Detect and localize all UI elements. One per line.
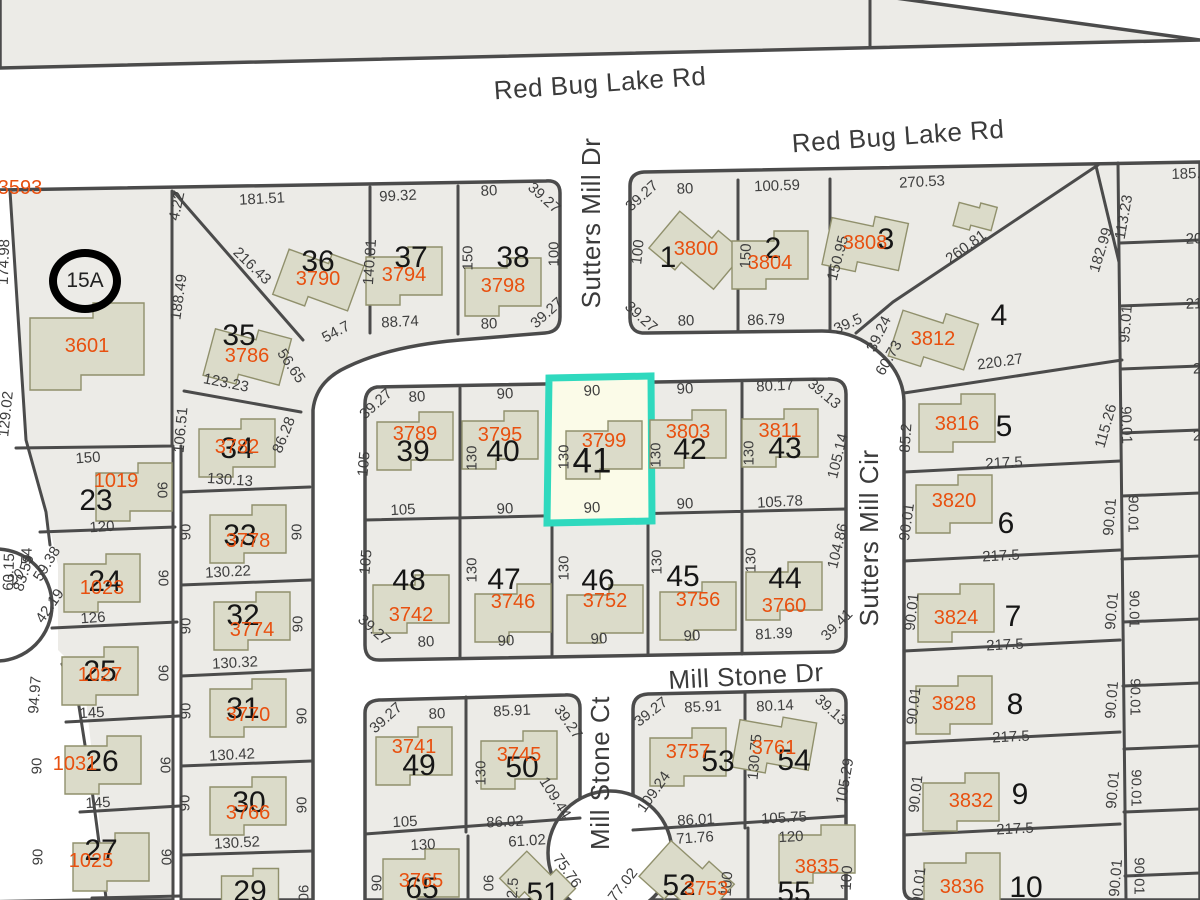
map-canvas[interactable] — [0, 0, 1200, 900]
block-north-of-road[interactable] — [0, 0, 1200, 68]
parcel-map-stage[interactable]: Red Bug Lake RdRed Bug Lake RdSutters Mi… — [0, 0, 1200, 900]
map-marker-15a: 15A — [49, 249, 121, 313]
